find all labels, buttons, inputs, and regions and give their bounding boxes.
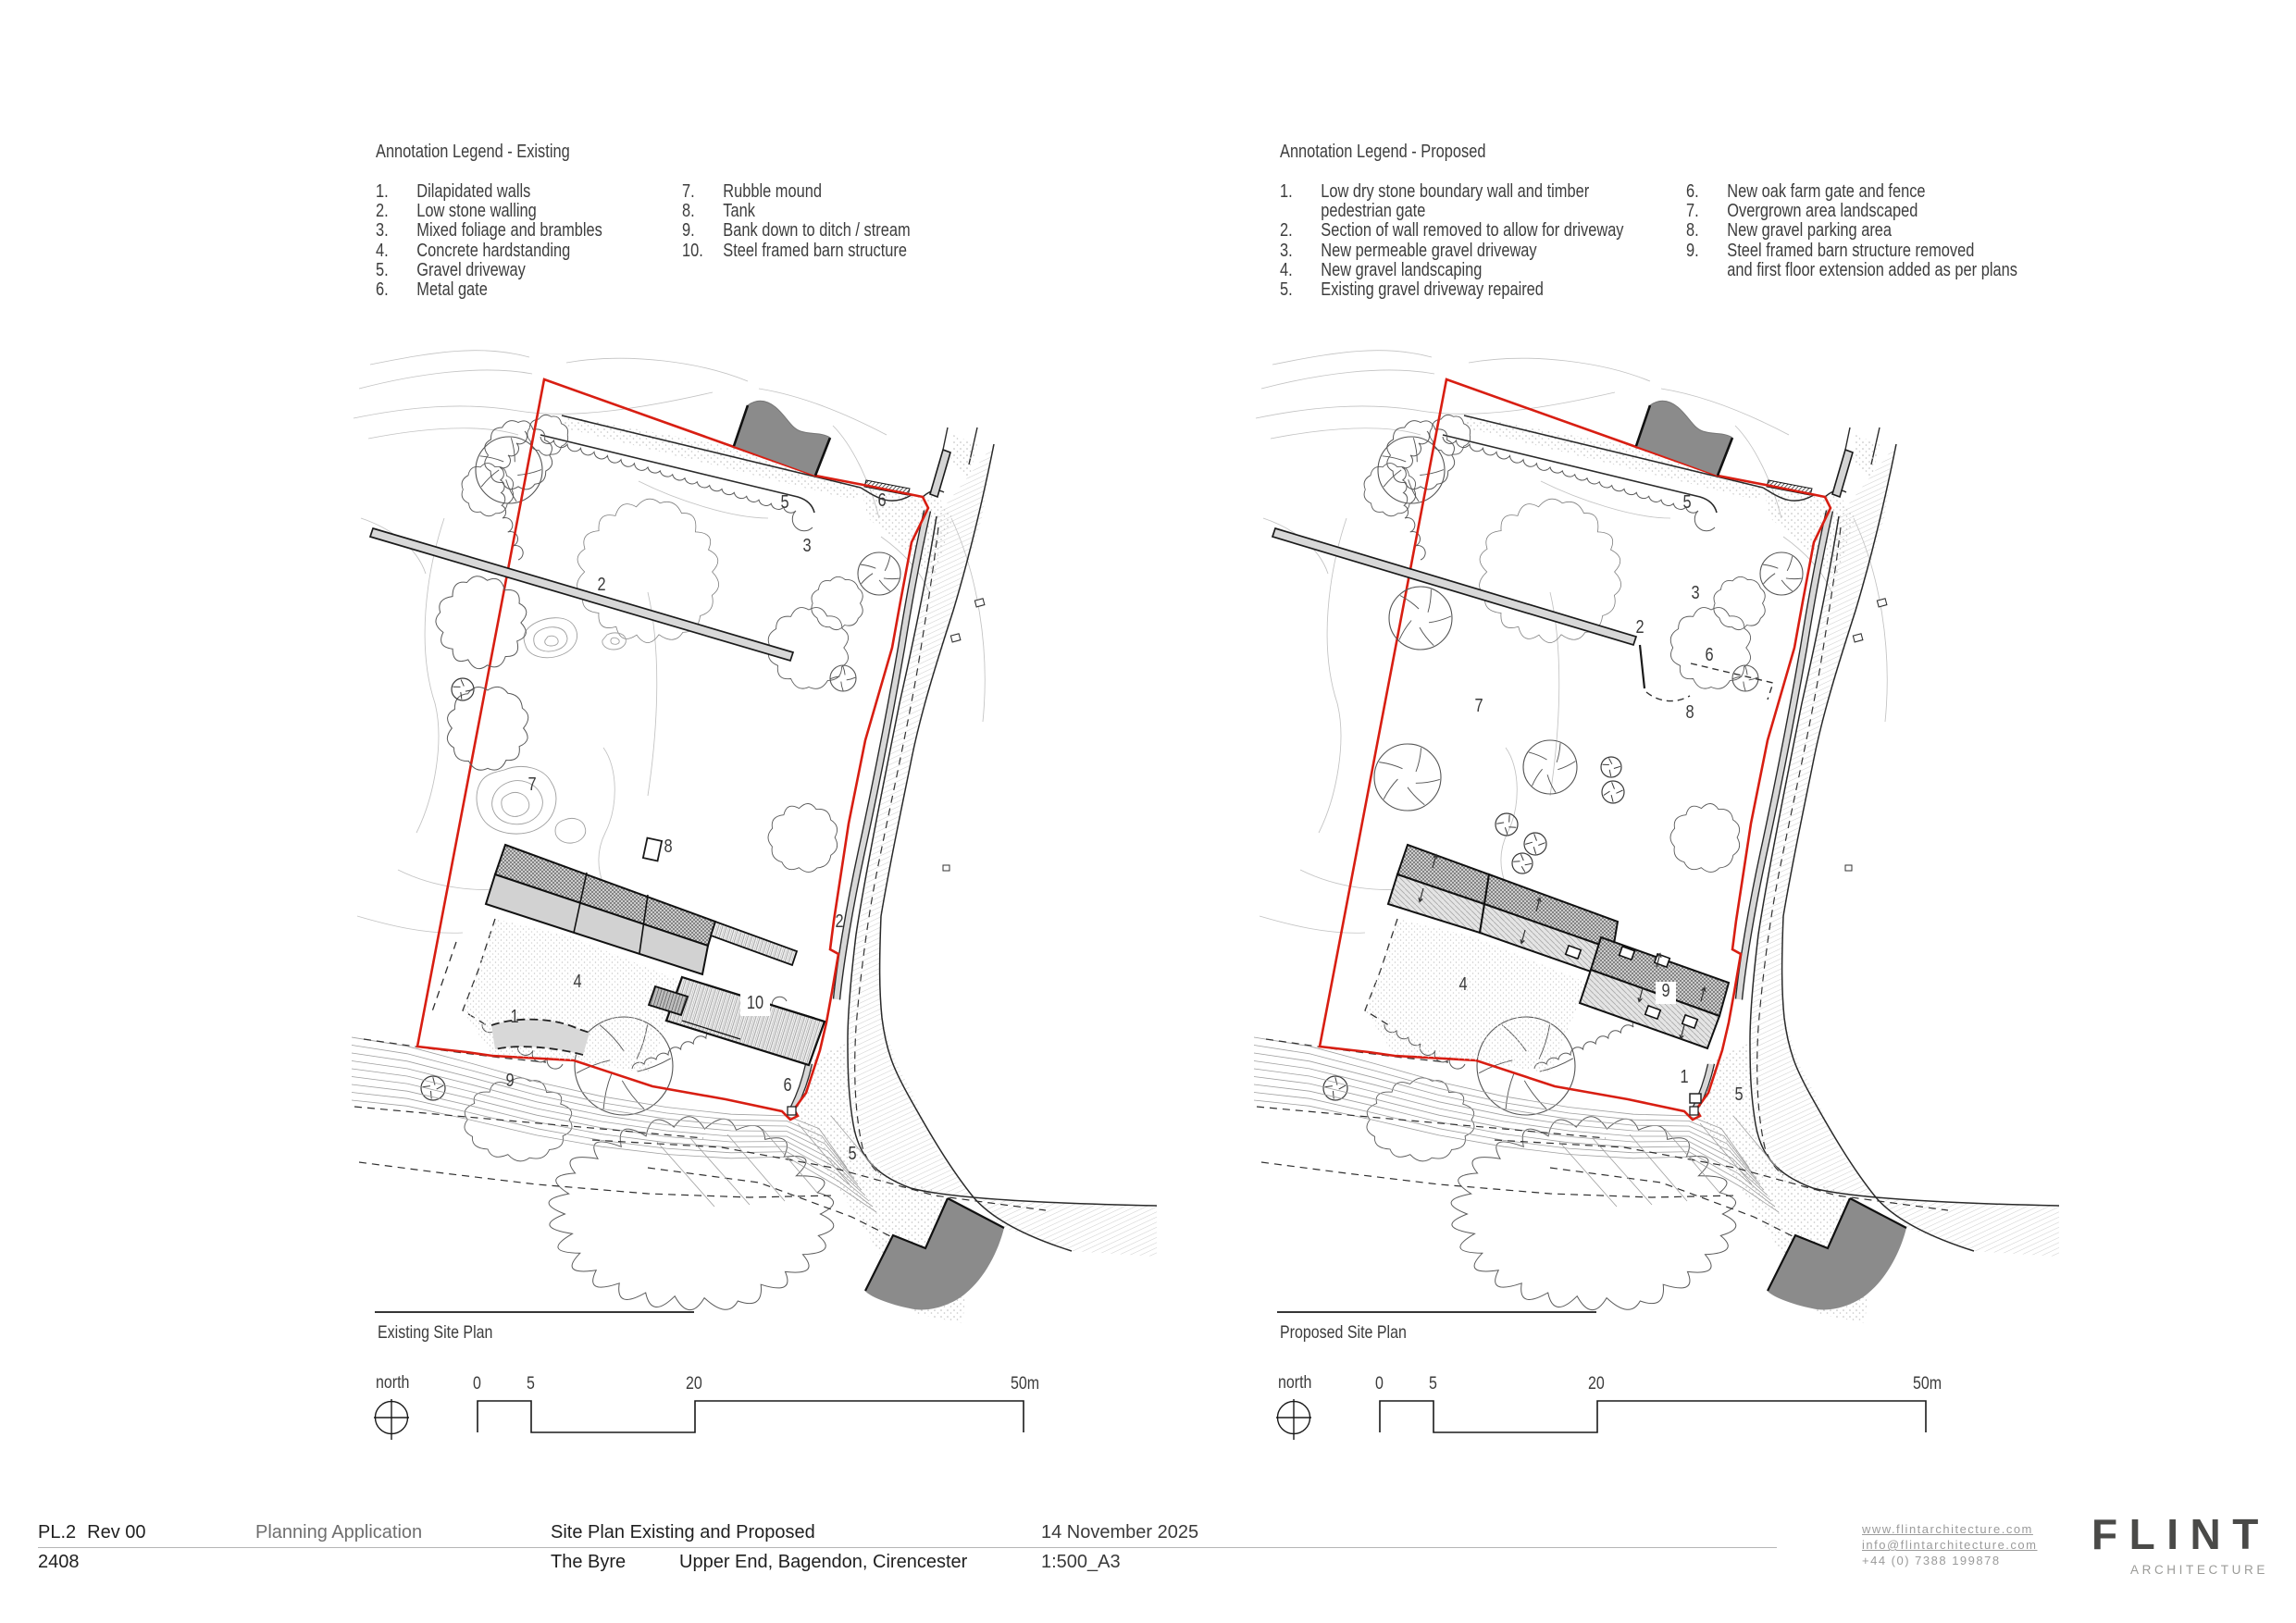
svg-text:6: 6 <box>877 489 886 510</box>
svg-text:8: 8 <box>664 835 672 856</box>
svg-text:1: 1 <box>1680 1065 1688 1086</box>
svg-text:4: 4 <box>1458 973 1467 994</box>
svg-text:north: north <box>1278 1372 1311 1393</box>
svg-text:1: 1 <box>510 1005 518 1026</box>
svg-text:2: 2 <box>1635 615 1644 637</box>
svg-text:5: 5 <box>848 1142 856 1163</box>
svg-text:3: 3 <box>1691 581 1699 602</box>
svg-text:5: 5 <box>527 1373 535 1394</box>
svg-text:20: 20 <box>686 1373 702 1394</box>
svg-text:20: 20 <box>1588 1373 1605 1394</box>
svg-text:north: north <box>376 1372 409 1393</box>
svg-text:50m: 50m <box>1011 1373 1039 1394</box>
svg-text:Existing Site Plan: Existing Site Plan <box>378 1322 492 1343</box>
svg-text:7: 7 <box>1474 694 1483 715</box>
svg-text:5: 5 <box>780 490 788 512</box>
svg-text:9: 9 <box>505 1069 514 1090</box>
svg-text:50m: 50m <box>1913 1373 1942 1394</box>
svg-text:Proposed Site Plan: Proposed Site Plan <box>1280 1322 1407 1343</box>
svg-text:3: 3 <box>802 534 811 555</box>
svg-text:4: 4 <box>573 970 581 991</box>
svg-text:8: 8 <box>1685 700 1694 722</box>
svg-text:5: 5 <box>1734 1083 1743 1104</box>
svg-text:5: 5 <box>1429 1373 1437 1394</box>
svg-text:2: 2 <box>597 573 605 594</box>
svg-text:5: 5 <box>1682 490 1691 512</box>
svg-text:9: 9 <box>1661 979 1669 1000</box>
svg-text:2: 2 <box>835 910 843 931</box>
svg-text:6: 6 <box>783 1073 791 1095</box>
svg-text:0: 0 <box>1375 1373 1384 1394</box>
svg-text:7: 7 <box>527 773 536 794</box>
svg-text:6: 6 <box>1705 643 1713 664</box>
svg-text:10: 10 <box>747 991 763 1012</box>
svg-text:0: 0 <box>473 1373 481 1394</box>
